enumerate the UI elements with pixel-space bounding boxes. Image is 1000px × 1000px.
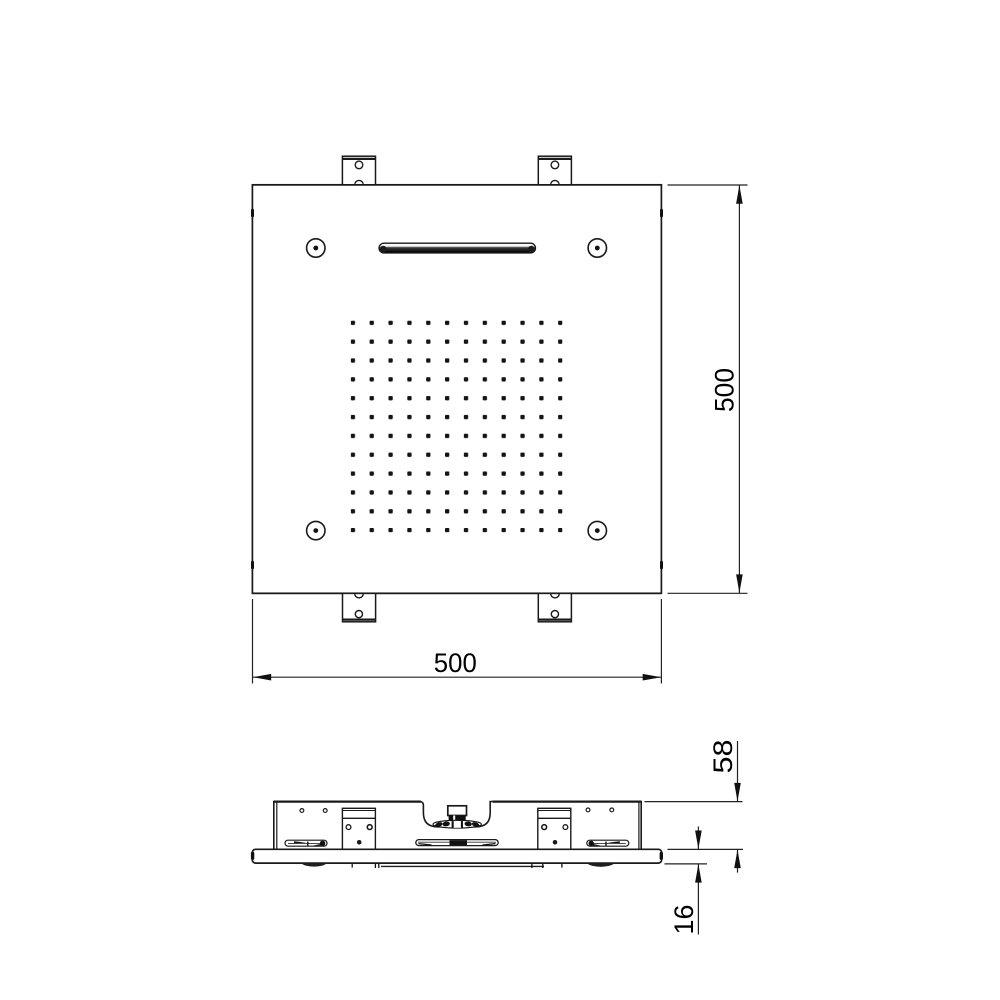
- svg-text:16: 16: [669, 905, 699, 935]
- svg-text:500: 500: [434, 648, 477, 678]
- svg-text:58: 58: [708, 740, 738, 774]
- svg-text:500: 500: [709, 368, 739, 412]
